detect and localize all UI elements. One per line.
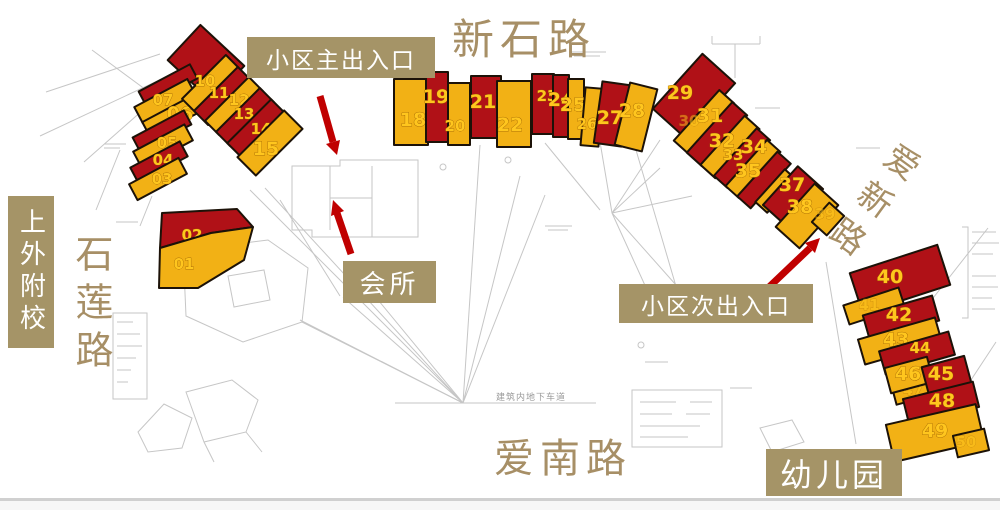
secondary-entrance-label: 小区次出入口: [619, 284, 813, 323]
building-50: 50: [953, 429, 989, 458]
kindergarten-label: 幼儿园: [766, 449, 902, 496]
building-number-31: 31: [697, 105, 723, 127]
building-number-18: 18: [400, 109, 426, 131]
road-label-ainan: 爱南路: [494, 426, 632, 484]
building-number-49: 49: [922, 420, 948, 442]
building-number-01: 01: [174, 255, 195, 273]
building-number-38: 38: [787, 196, 813, 218]
building-number-35: 35: [735, 160, 761, 182]
main-entrance-label: 小区主出入口: [247, 37, 435, 78]
building-number-20: 20: [445, 117, 466, 135]
building-number-26: 26: [577, 115, 598, 133]
building-number-19: 19: [423, 86, 449, 108]
building-number-25: 25: [560, 94, 586, 116]
road-label-shilian: 石莲路: [64, 234, 119, 378]
building-number-21: 21: [470, 91, 496, 113]
building-number-34: 34: [741, 136, 767, 158]
building-number-42: 42: [886, 304, 912, 326]
underground-passage-note: 建筑内地下车道: [496, 390, 566, 403]
building-number-37: 37: [779, 174, 805, 196]
building-number-28: 28: [619, 100, 645, 122]
building-number-22: 22: [497, 114, 523, 136]
building-number-44: 44: [910, 339, 931, 357]
school-label: 上外附校: [8, 196, 54, 348]
main-entrance-arrow: [320, 96, 340, 155]
building-20: 20: [445, 83, 470, 145]
bottom-strip: [0, 501, 1000, 510]
building-number-40: 40: [877, 266, 903, 288]
building-number-45: 45: [928, 363, 954, 385]
clubhouse-label: 会所: [343, 261, 436, 303]
building-number-48: 48: [929, 390, 955, 412]
building-number-29: 29: [667, 82, 693, 104]
clubhouse-arrow: [331, 200, 351, 254]
building-number-15: 15: [253, 138, 279, 160]
building-number-50: 50: [956, 433, 977, 451]
building-number-03: 03: [152, 170, 173, 188]
road-label-xinshi: 新石路: [452, 6, 596, 67]
building-number-46: 46: [895, 363, 921, 385]
building-22: 22: [497, 81, 531, 147]
site-plan: 0706050403101112131415020118192021222324…: [0, 0, 1000, 510]
